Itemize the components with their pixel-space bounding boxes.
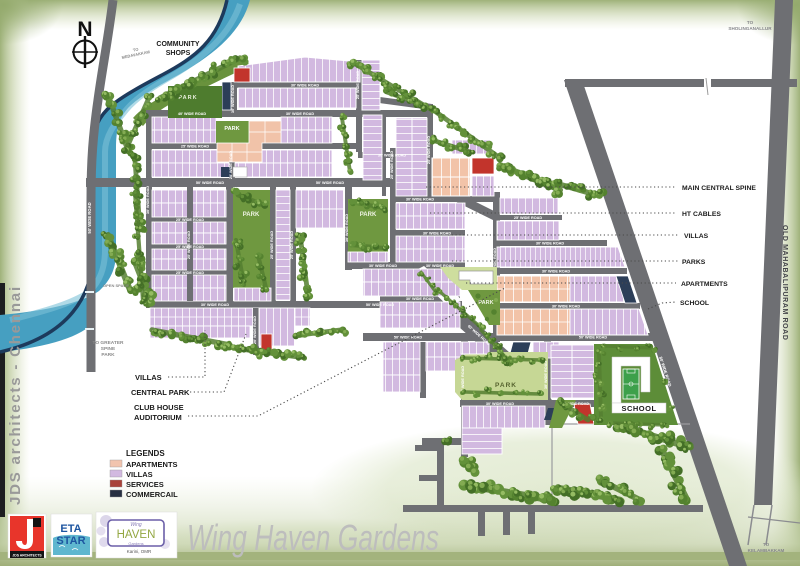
svg-text:30' WIDE ROAD: 30' WIDE ROAD bbox=[146, 186, 150, 215]
svg-text:HAVEN: HAVEN bbox=[117, 529, 156, 541]
svg-text:PARK: PARK bbox=[478, 300, 493, 306]
svg-text:30' WIDE ROAD: 30' WIDE ROAD bbox=[369, 264, 398, 268]
svg-text:VILLAS: VILLAS bbox=[684, 233, 709, 240]
svg-text:PARK: PARK bbox=[495, 382, 517, 389]
svg-text:Gardens: Gardens bbox=[128, 541, 143, 546]
svg-text:OPEN SPACE: OPEN SPACE bbox=[103, 283, 129, 288]
svg-text:N: N bbox=[77, 18, 92, 41]
svg-text:STAR: STAR bbox=[56, 535, 85, 547]
svg-text:PARK: PARK bbox=[101, 352, 115, 358]
svg-text:30' WIDE ROAD: 30' WIDE ROAD bbox=[544, 361, 548, 390]
svg-text:SCHOOL: SCHOOL bbox=[680, 300, 709, 307]
svg-text:50' WIDE ROAD: 50' WIDE ROAD bbox=[316, 181, 345, 185]
svg-text:Wing Haven Gardens: Wing Haven Gardens bbox=[187, 517, 439, 558]
svg-text:25' WIDE ROAD: 25' WIDE ROAD bbox=[390, 151, 394, 180]
svg-text:APARTMENTS: APARTMENTS bbox=[126, 460, 178, 469]
svg-text:SHOPS: SHOPS bbox=[166, 50, 191, 57]
svg-text:OLD MAHABALIPURAM ROAD: OLD MAHABALIPURAM ROAD bbox=[781, 225, 788, 340]
svg-text:50' WIDE ROAD: 50' WIDE ROAD bbox=[394, 335, 423, 339]
svg-text:25' WIDE ROAD: 25' WIDE ROAD bbox=[356, 71, 360, 100]
svg-text:30' WIDE ROAD: 30' WIDE ROAD bbox=[231, 85, 235, 114]
svg-text:PARK: PARK bbox=[224, 126, 239, 132]
svg-text:PARK: PARK bbox=[360, 212, 377, 218]
svg-text:30' WIDE ROAD: 30' WIDE ROAD bbox=[345, 214, 349, 243]
svg-text:HT CABLES: HT CABLES bbox=[682, 211, 721, 218]
svg-text:20' WIDE ROAD: 20' WIDE ROAD bbox=[253, 316, 257, 345]
svg-text:VILLAS: VILLAS bbox=[135, 373, 162, 382]
svg-text:50' WIDE ROAD: 50' WIDE ROAD bbox=[366, 303, 395, 307]
svg-text:30' WIDE ROAD: 30' WIDE ROAD bbox=[542, 269, 571, 273]
svg-text:25' WIDE ROAD: 25' WIDE ROAD bbox=[181, 144, 210, 148]
svg-text:ETA: ETA bbox=[60, 523, 81, 535]
svg-text:AUDITORIUM: AUDITORIUM bbox=[134, 413, 182, 422]
svg-text:SERVICES: SERVICES bbox=[126, 480, 164, 489]
svg-text:PARK: PARK bbox=[178, 95, 197, 101]
svg-text:25' WIDE ROAD: 25' WIDE ROAD bbox=[290, 231, 294, 260]
svg-text:KELAMBAKKAM: KELAMBAKKAM bbox=[748, 548, 785, 553]
svg-text:COMMUNITY: COMMUNITY bbox=[156, 41, 199, 48]
svg-text:25' WIDE ROAD: 25' WIDE ROAD bbox=[176, 218, 205, 222]
svg-text:50' WIDE ROAD: 50' WIDE ROAD bbox=[579, 335, 608, 339]
svg-text:CLUB HOUSE: CLUB HOUSE bbox=[134, 403, 184, 412]
svg-text:30' WIDE ROAD: 30' WIDE ROAD bbox=[486, 402, 515, 406]
svg-text:COMMERCAIL: COMMERCAIL bbox=[126, 490, 178, 499]
svg-text:SCHOOL: SCHOOL bbox=[621, 404, 656, 413]
svg-text:Wing: Wing bbox=[130, 522, 142, 528]
svg-text:TO GREATER: TO GREATER bbox=[92, 340, 124, 346]
svg-text:30' WIDE ROAD: 30' WIDE ROAD bbox=[201, 303, 230, 307]
svg-text:30' WIDE ROAD: 30' WIDE ROAD bbox=[406, 297, 435, 301]
svg-text:APARTMENTS: APARTMENTS bbox=[681, 281, 728, 288]
svg-text:25' WIDE ROAD: 25' WIDE ROAD bbox=[270, 231, 274, 260]
svg-text:30' WIDE ROAD: 30' WIDE ROAD bbox=[423, 232, 452, 236]
svg-text:JDS architects - Chennai: JDS architects - Chennai bbox=[7, 285, 24, 505]
svg-text:LEGENDS: LEGENDS bbox=[126, 449, 165, 458]
svg-text:PARK: PARK bbox=[243, 212, 260, 218]
svg-text:25' WIDE ROAD: 25' WIDE ROAD bbox=[514, 216, 543, 220]
svg-text:PARKS: PARKS bbox=[682, 259, 706, 266]
svg-text:CENTRAL PARK: CENTRAL PARK bbox=[131, 388, 190, 397]
svg-text:20' WIDE ROAD: 20' WIDE ROAD bbox=[229, 151, 233, 180]
svg-text:TO: TO bbox=[763, 542, 770, 547]
svg-text:TO: TO bbox=[747, 20, 754, 25]
svg-text:30' WIDE ROAD: 30' WIDE ROAD bbox=[286, 112, 315, 116]
svg-text:25' WIDE ROAD: 25' WIDE ROAD bbox=[176, 271, 205, 275]
svg-text:SPINE: SPINE bbox=[101, 346, 116, 352]
svg-text:25' WIDE ROAD: 25' WIDE ROAD bbox=[187, 231, 191, 260]
svg-text:Karini, OMR: Karini, OMR bbox=[127, 549, 152, 554]
svg-text:30' WIDE ROAD: 30' WIDE ROAD bbox=[536, 242, 565, 246]
svg-text:VILLAS: VILLAS bbox=[126, 470, 153, 479]
svg-text:50' WIDE ROAD: 50' WIDE ROAD bbox=[87, 202, 92, 233]
svg-text:MAIN CENTRAL SPINE: MAIN CENTRAL SPINE bbox=[682, 185, 756, 192]
svg-text:40' WIDE ROAD: 40' WIDE ROAD bbox=[178, 112, 207, 116]
svg-text:JDS ARCHITECTS: JDS ARCHITECTS bbox=[12, 554, 42, 558]
svg-text:30' WIDE ROAD: 30' WIDE ROAD bbox=[291, 83, 320, 87]
svg-text:50' WIDE ROAD: 50' WIDE ROAD bbox=[196, 181, 225, 185]
svg-text:30' WIDE ROAD: 30' WIDE ROAD bbox=[552, 305, 581, 309]
svg-text:30' WIDE ROAD: 30' WIDE ROAD bbox=[406, 198, 435, 202]
svg-text:SHOLINGANALLUR: SHOLINGANALLUR bbox=[728, 26, 772, 31]
